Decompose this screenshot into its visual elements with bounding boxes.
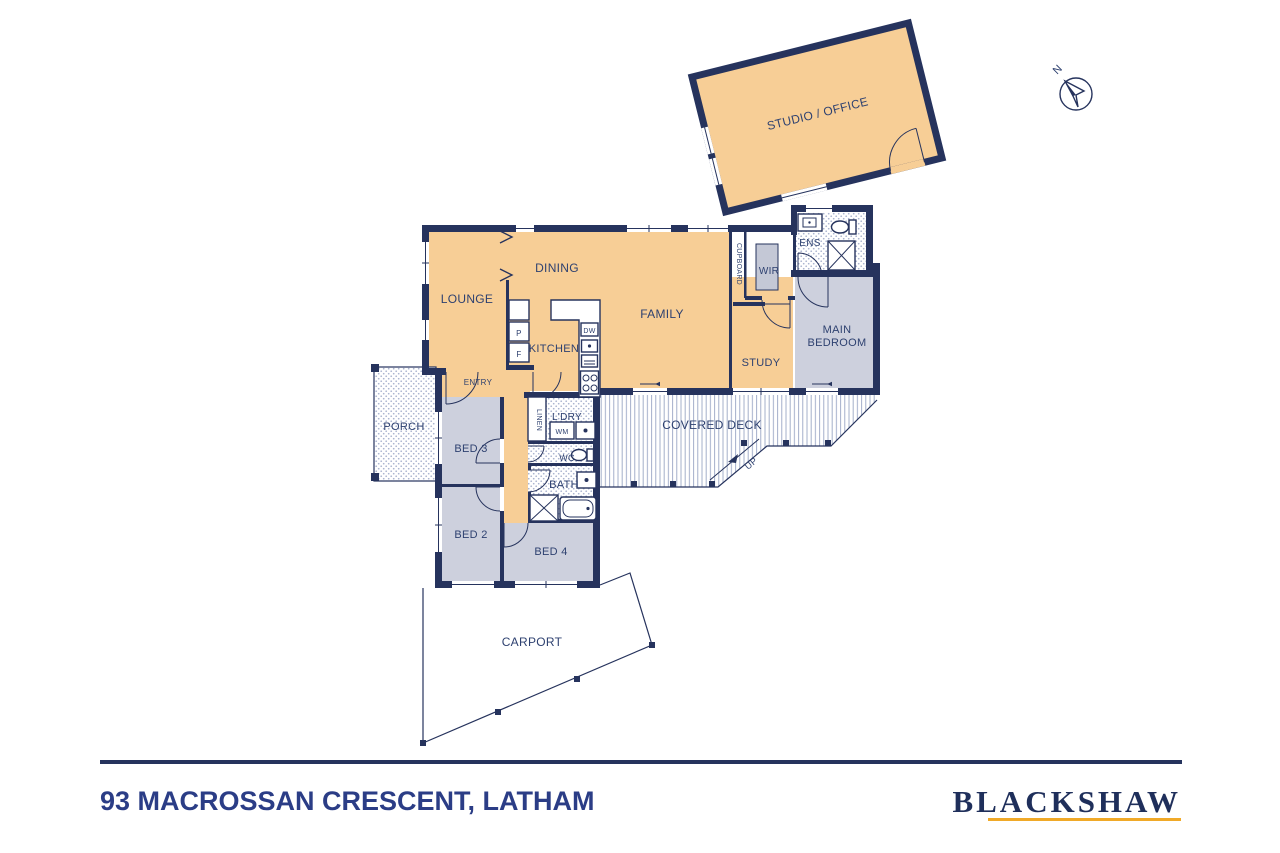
- linen-label: LINEN: [535, 409, 542, 431]
- brand-name: BLACKSHAW: [952, 784, 1181, 819]
- bath-vanity: [577, 472, 596, 488]
- address-title: 93 MACROSSAN CRESCENT, LATHAM: [100, 786, 595, 816]
- study-floor: [731, 277, 793, 391]
- lounge-label: LOUNGE: [441, 292, 493, 306]
- dishwasher-label: DW: [583, 328, 595, 335]
- footer-divider: [100, 760, 1182, 764]
- bed2-label: BED 2: [454, 529, 487, 541]
- kitchen-label: KITCHEN: [529, 343, 579, 355]
- window: [422, 320, 429, 340]
- pantry-label: P: [516, 329, 522, 338]
- covered-deck: UP COVERED DECK: [600, 395, 877, 487]
- dining-label: DINING: [535, 261, 579, 275]
- compass: N: [1051, 63, 1092, 110]
- carport: CARPORT: [420, 573, 655, 746]
- bed4-label: BED 4: [534, 546, 567, 558]
- main-bedroom-label-2: BEDROOM: [808, 337, 867, 349]
- bath-label: BATH: [549, 479, 579, 491]
- window: [515, 581, 577, 588]
- ens-shower: [828, 241, 855, 270]
- ens-toilet: [832, 220, 857, 234]
- window: [806, 205, 832, 212]
- window: [435, 498, 442, 552]
- covered-deck-label: COVERED DECK: [662, 418, 762, 432]
- laundry-label: L'DRY: [552, 412, 582, 423]
- window: [452, 581, 494, 588]
- shower: [530, 495, 558, 521]
- window: [688, 225, 728, 232]
- compass-north-label: N: [1051, 63, 1065, 77]
- kitchen-cupboard: [509, 300, 529, 320]
- bathtub: [560, 497, 596, 520]
- fridge-label: F: [516, 350, 521, 359]
- cooktop: [581, 371, 599, 394]
- bed3-label: BED 3: [454, 443, 487, 455]
- brand-logo: BLACKSHAW: [952, 784, 1181, 821]
- wir-label: WIR: [759, 266, 779, 277]
- porch-post: [371, 364, 379, 372]
- footer: 93 MACROSSAN CRESCENT, LATHAM BLACKSHAW: [100, 760, 1182, 821]
- ens-label: ENS: [799, 238, 820, 249]
- window: [516, 225, 534, 232]
- studio-office: STUDIO / OFFICE: [689, 23, 943, 216]
- window: [733, 388, 789, 395]
- washing-machine-label: WM: [555, 429, 568, 436]
- cupboard-label: CUPBOARD: [735, 243, 742, 285]
- family-label: FAMILY: [640, 307, 684, 321]
- brand-underline: [988, 818, 1181, 821]
- window: [435, 412, 442, 464]
- wc-label: WC: [559, 453, 575, 463]
- entry-label: ENTRY: [464, 378, 493, 387]
- laundry-tub: [576, 422, 595, 439]
- study-label: STUDY: [742, 357, 781, 369]
- main-bedroom-label-1: MAIN: [823, 324, 852, 336]
- window: [627, 225, 671, 232]
- porch-label: PORCH: [383, 421, 424, 433]
- porch-post: [371, 473, 379, 481]
- floor-plan: STUDIO / OFFICE N UP COVERED DECK: [0, 0, 1280, 853]
- carport-label: CARPORT: [502, 635, 563, 649]
- window: [422, 242, 429, 284]
- hall-floor: [504, 392, 528, 523]
- porch: PORCH: [371, 364, 436, 481]
